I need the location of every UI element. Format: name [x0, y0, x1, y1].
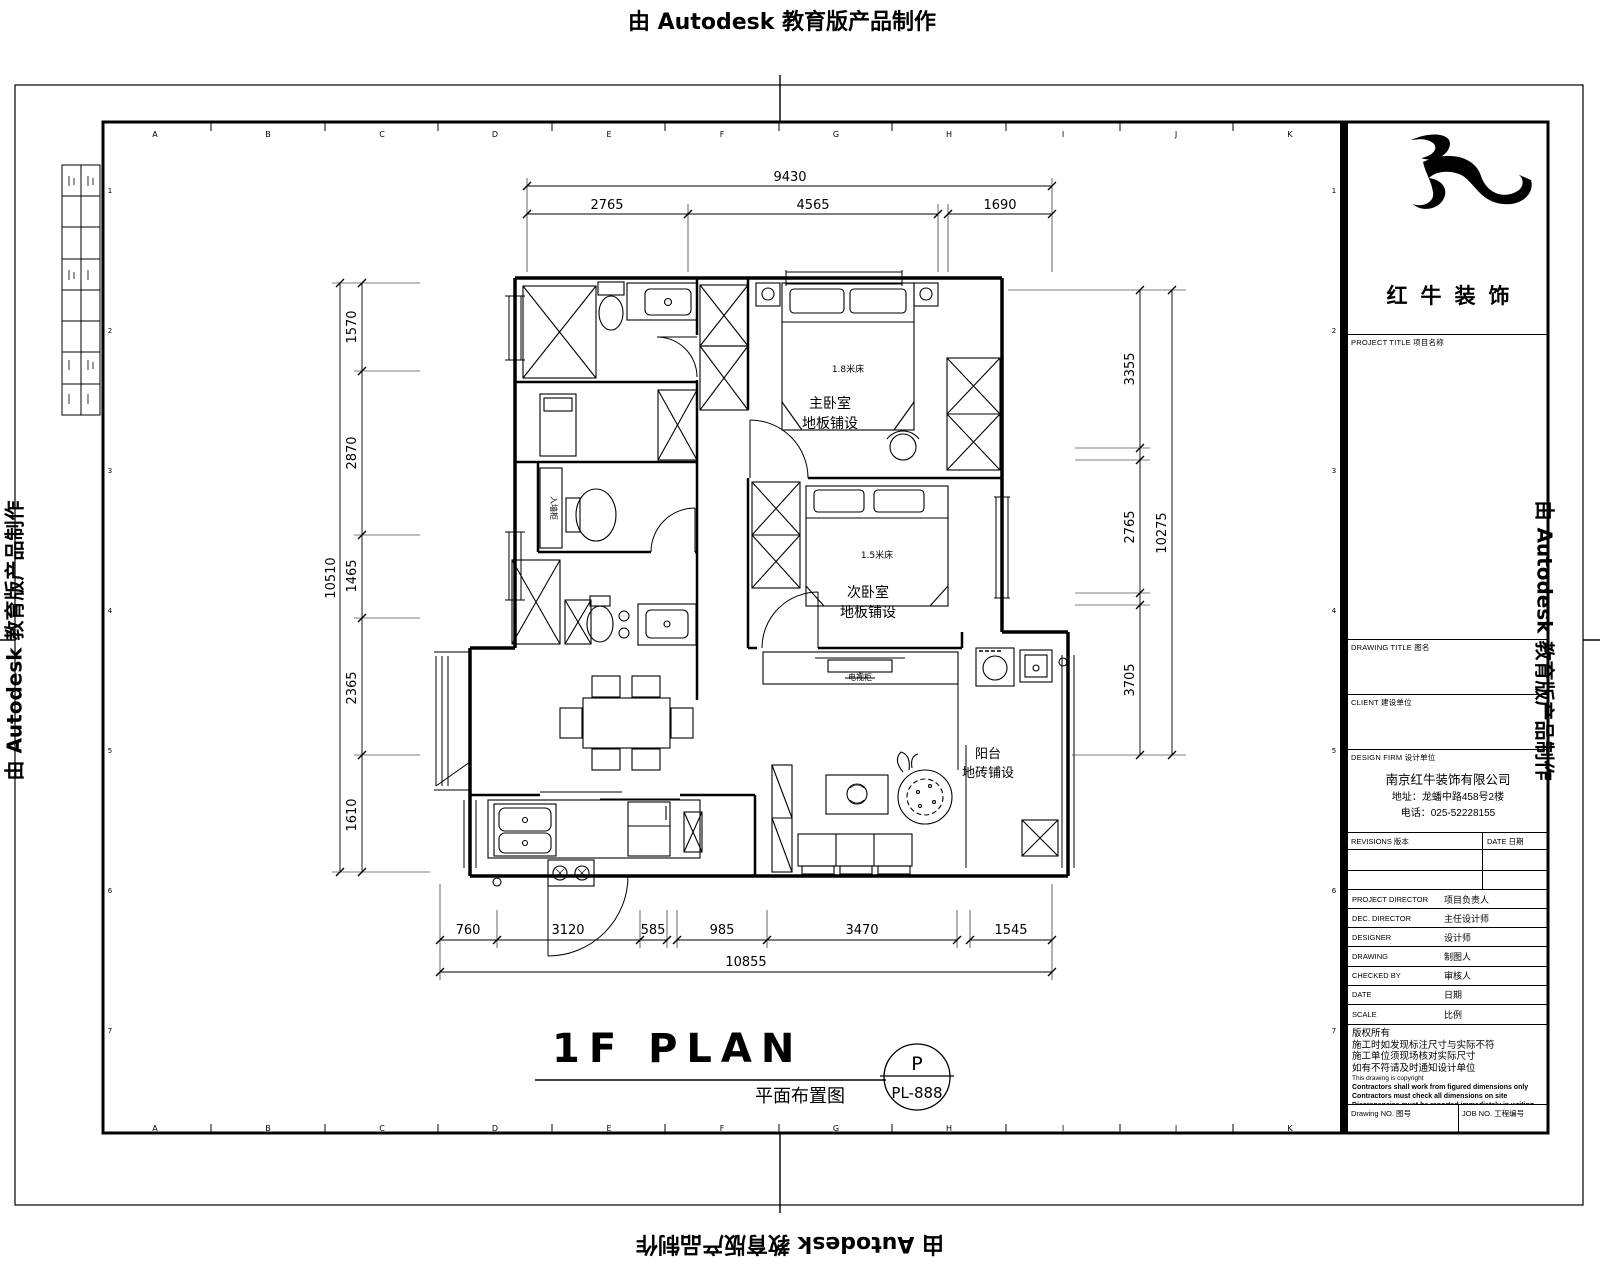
washing-machine: [976, 648, 1014, 686]
grid-numbers: 1 2 3 4 5 6 7 1 2 3 4 5 6 7: [108, 187, 1337, 1035]
dim-left-overall: 10510: [324, 557, 339, 598]
personnel-zh: 比例: [1444, 1008, 1462, 1021]
grid-number: 4: [1332, 607, 1337, 615]
grid-number: 1: [1332, 187, 1336, 195]
door-entry: [548, 876, 628, 956]
grid-number: 7: [1332, 1027, 1336, 1035]
drawing-title-section: DRAWING TITLE 图名: [1348, 640, 1548, 695]
footer-section: Drawing NO. 图号 JOB NO. 工程编号: [1348, 1105, 1548, 1133]
personnel-en: DATE: [1352, 990, 1444, 999]
dining-table: [560, 676, 693, 770]
door-wc: [651, 508, 695, 552]
stamp-number: PL-888: [891, 1084, 942, 1102]
grid-letter: A: [152, 130, 158, 139]
dim-bottom-overall: 10855: [725, 955, 766, 970]
label-master-bed: 1.8米床: [832, 363, 864, 375]
balcony-sink: [1020, 650, 1052, 682]
personnel-row: DATE日期: [1348, 986, 1548, 1005]
stamp-letter: P: [911, 1053, 922, 1075]
revisions-section: REVISIONS 版本 DATE 日期: [1348, 833, 1548, 890]
grid-letter: A: [152, 1124, 158, 1133]
personnel-zh: 设计师: [1444, 931, 1471, 944]
side-cabinet: [772, 765, 792, 872]
grid-letter: B: [265, 130, 271, 139]
drawing-no-label: Drawing NO. 图号: [1348, 1105, 1458, 1133]
label-second-finish: 地板铺设: [840, 605, 896, 621]
grid-letters-top: A B C D E F G H I J K: [152, 130, 1293, 139]
grid-letter: K: [1287, 1124, 1293, 1133]
personnel-zh: 日期: [1444, 988, 1462, 1001]
grid-letter: F: [720, 130, 725, 139]
duct-column: [684, 812, 702, 852]
label-balcony-finish: 地砖铺设: [962, 766, 1014, 781]
title-block-divider: [1340, 122, 1348, 1133]
personnel-en: DEC. DIRECTOR: [1352, 914, 1444, 923]
client-section: CLIENT 建设单位: [1348, 695, 1548, 750]
floor-drain: [1059, 658, 1067, 666]
grid-letter: G: [833, 130, 839, 139]
shower-2: [512, 560, 560, 644]
door-master-bedroom: [750, 420, 808, 478]
rednow-logo-icon: [1363, 128, 1533, 278]
personnel-row: CHECKED BY审核人: [1348, 967, 1548, 986]
personnel-row: DEC. DIRECTOR主任设计师: [1348, 909, 1548, 928]
note-line-en: Contractors shall work from figured dime…: [1352, 1083, 1544, 1092]
dim-bottom-seg: 3120: [551, 923, 584, 938]
plan-title-zh: 平面布置图: [755, 1086, 845, 1107]
personnel-en: SCALE: [1352, 1010, 1444, 1019]
wardrobe-second: [752, 482, 800, 588]
grid-number: 5: [108, 747, 112, 755]
coffee-table: [826, 775, 888, 814]
grid-letter: D: [492, 130, 498, 139]
personnel-zh: 制图人: [1444, 950, 1471, 963]
grid-letter: H: [946, 1124, 952, 1133]
dressing-stool: [887, 431, 919, 460]
label-tv-cabinet: 电视柜: [848, 672, 872, 682]
revision-row: [1348, 871, 1548, 890]
label-master-bedroom: 主卧室: [809, 395, 851, 412]
personnel-zh: 项目负责人: [1444, 893, 1489, 906]
design-firm-header: DESIGN FIRM 设计单位: [1348, 750, 1548, 763]
grid-letter: E: [606, 1124, 611, 1133]
nightstand: [756, 283, 938, 306]
dim-bottom-seg: 760: [456, 923, 481, 938]
label-balcony: 阳台: [975, 747, 1001, 762]
grid-letter: D: [492, 1124, 498, 1133]
toilet-1: [598, 282, 624, 330]
project-title-section: PROJECT TITLE 项目名称: [1348, 335, 1548, 640]
logo-name: 红牛装饰: [1348, 280, 1548, 310]
grid-number: 6: [108, 887, 113, 895]
sofa: [798, 834, 912, 874]
note-line: 施工单位须现场核对实际尺寸: [1352, 1051, 1544, 1063]
washer-taps: [619, 611, 629, 638]
revisions-date-header: DATE 日期: [1482, 833, 1548, 849]
grid-letter: B: [265, 1124, 271, 1133]
note-line: 如有不符请及时通知设计单位: [1352, 1063, 1544, 1075]
grid-number: 2: [108, 327, 112, 335]
grid-number: 3: [1332, 467, 1336, 475]
plan-title: 1F PLAN 平面布置图 P PL-888: [535, 1026, 954, 1110]
personnel-row: DESIGNER设计师: [1348, 928, 1548, 947]
logo-section: 红牛装饰: [1348, 122, 1548, 335]
dim-bottom-seg: 3470: [845, 923, 878, 938]
dim-bottom-seg: 985: [710, 923, 735, 938]
grid-letter: F: [720, 1124, 725, 1133]
title-block: 红牛装饰 PROJECT TITLE 项目名称 DRAWING TITLE 图名…: [1348, 122, 1548, 1133]
personnel-section: PROJECT DIRECTOR项目负责人 DEC. DIRECTOR主任设计师…: [1348, 890, 1548, 1025]
note-line: 版权所有: [1352, 1028, 1544, 1040]
wardrobe-single: [658, 390, 697, 460]
grid-letter: H: [946, 130, 952, 139]
door-second-bedroom: [762, 592, 818, 648]
grid-letter: C: [379, 1124, 385, 1133]
note-line-en: This drawing is copyright: [1352, 1075, 1544, 1083]
dim-left-seg: 2870: [345, 436, 360, 469]
grid-letter: J: [1174, 1124, 1177, 1133]
dim-bottom-seg: 585: [641, 923, 666, 938]
furniture: [488, 282, 1067, 886]
job-no-label: JOB NO. 工程编号: [1458, 1105, 1548, 1133]
client-header: CLIENT 建设单位: [1348, 695, 1548, 708]
plant: [897, 752, 952, 824]
grid-number: 5: [1332, 747, 1336, 755]
cabinet-hall: [700, 285, 748, 410]
vanity-2: [638, 604, 696, 645]
revision-row: [1348, 850, 1548, 871]
refrigerator: [628, 802, 670, 856]
dim-left-seg: 1610: [345, 798, 360, 831]
door-bathroom1: [657, 337, 697, 377]
grid-ticks: [211, 122, 1233, 1133]
grid-number: 1: [108, 187, 112, 195]
grid-letter: I: [1062, 1124, 1064, 1133]
firm-name: 南京红牛装饰有限公司: [1348, 771, 1548, 790]
gas-valve: [493, 878, 501, 886]
dim-left-seg: 2365: [345, 671, 360, 704]
dim-top-seg: 4565: [796, 198, 829, 213]
dim-right-seg: 2765: [1123, 510, 1138, 543]
dim-top-seg: 1690: [983, 198, 1016, 213]
vanity-1: [627, 283, 697, 320]
dim-right-seg: 3355: [1123, 352, 1138, 385]
note-line-en: Contractors must check all dimensions on…: [1352, 1092, 1544, 1101]
dim-bottom-seg: 1545: [994, 923, 1027, 938]
dim-right-overall: 10275: [1155, 512, 1170, 553]
grid-letter: I: [1062, 130, 1064, 139]
grid-number: 3: [108, 467, 112, 475]
toilet-2: [566, 489, 616, 541]
grid-letter: K: [1287, 130, 1293, 139]
grid-letter: G: [833, 1124, 839, 1133]
revisions-header: REVISIONS 版本: [1348, 836, 1482, 847]
drawing-title-header: DRAWING TITLE 图名: [1348, 640, 1548, 653]
firm-address: 地址：龙蟠中路458号2楼: [1348, 790, 1548, 806]
label-master-finish: 地板铺设: [802, 416, 858, 432]
personnel-en: DESIGNER: [1352, 933, 1444, 942]
dimension-lines: [332, 178, 1186, 980]
project-title-header: PROJECT TITLE 项目名称: [1348, 335, 1548, 348]
dim-right-seg: 3705: [1123, 663, 1138, 696]
dim-left-seg: 1570: [345, 310, 360, 343]
bed-single: [540, 394, 576, 456]
notes-section: 版权所有 施工时如发现标注尺寸与实际不符 施工单位须现场核对实际尺寸 如有不符请…: [1348, 1025, 1548, 1105]
personnel-zh: 审核人: [1444, 969, 1471, 982]
plan-title-en: 1F PLAN: [552, 1026, 803, 1072]
shower-1: [523, 286, 596, 378]
note-line: 施工时如发现标注尺寸与实际不符: [1352, 1040, 1544, 1052]
door-sliding: [540, 655, 966, 868]
dim-top-seg: 2765: [590, 198, 623, 213]
label-second-bedroom: 次卧室: [847, 584, 889, 601]
label-wall-cabinet: 入墙柜: [549, 496, 559, 520]
revisions-column-divider: [1482, 849, 1483, 889]
personnel-en: PROJECT DIRECTOR: [1352, 895, 1444, 904]
grid-number: 6: [1332, 887, 1337, 895]
dim-top-overall: 9430: [773, 170, 806, 185]
grid-letter: C: [379, 130, 385, 139]
signature-table: [62, 165, 100, 415]
balcony-box: [1022, 820, 1058, 856]
design-firm-section: DESIGN FIRM 设计单位 南京红牛装饰有限公司 地址：龙蟠中路458号2…: [1348, 750, 1548, 833]
gas-stove: [548, 860, 594, 886]
dim-left-seg: 1465: [345, 559, 360, 592]
personnel-row: DRAWING制图人: [1348, 947, 1548, 966]
label-second-bed: 1.5米床: [861, 549, 893, 561]
firm-phone: 电话：025-52228155: [1348, 806, 1548, 822]
grid-number: 2: [1332, 327, 1336, 335]
grid-letter: E: [606, 130, 611, 139]
wardrobe-master: [947, 358, 1000, 470]
personnel-zh: 主任设计师: [1444, 912, 1489, 925]
personnel-en: DRAWING: [1352, 952, 1444, 961]
kitchen-sink: [494, 804, 556, 856]
grid-number: 7: [108, 1027, 112, 1035]
personnel-row: PROJECT DIRECTOR项目负责人: [1348, 890, 1548, 909]
personnel-en: CHECKED BY: [1352, 971, 1444, 980]
personnel-row: SCALE比例: [1348, 1005, 1548, 1024]
grid-letter: J: [1174, 130, 1177, 139]
grid-number: 4: [108, 607, 113, 615]
kitchen-counter: [488, 800, 700, 858]
